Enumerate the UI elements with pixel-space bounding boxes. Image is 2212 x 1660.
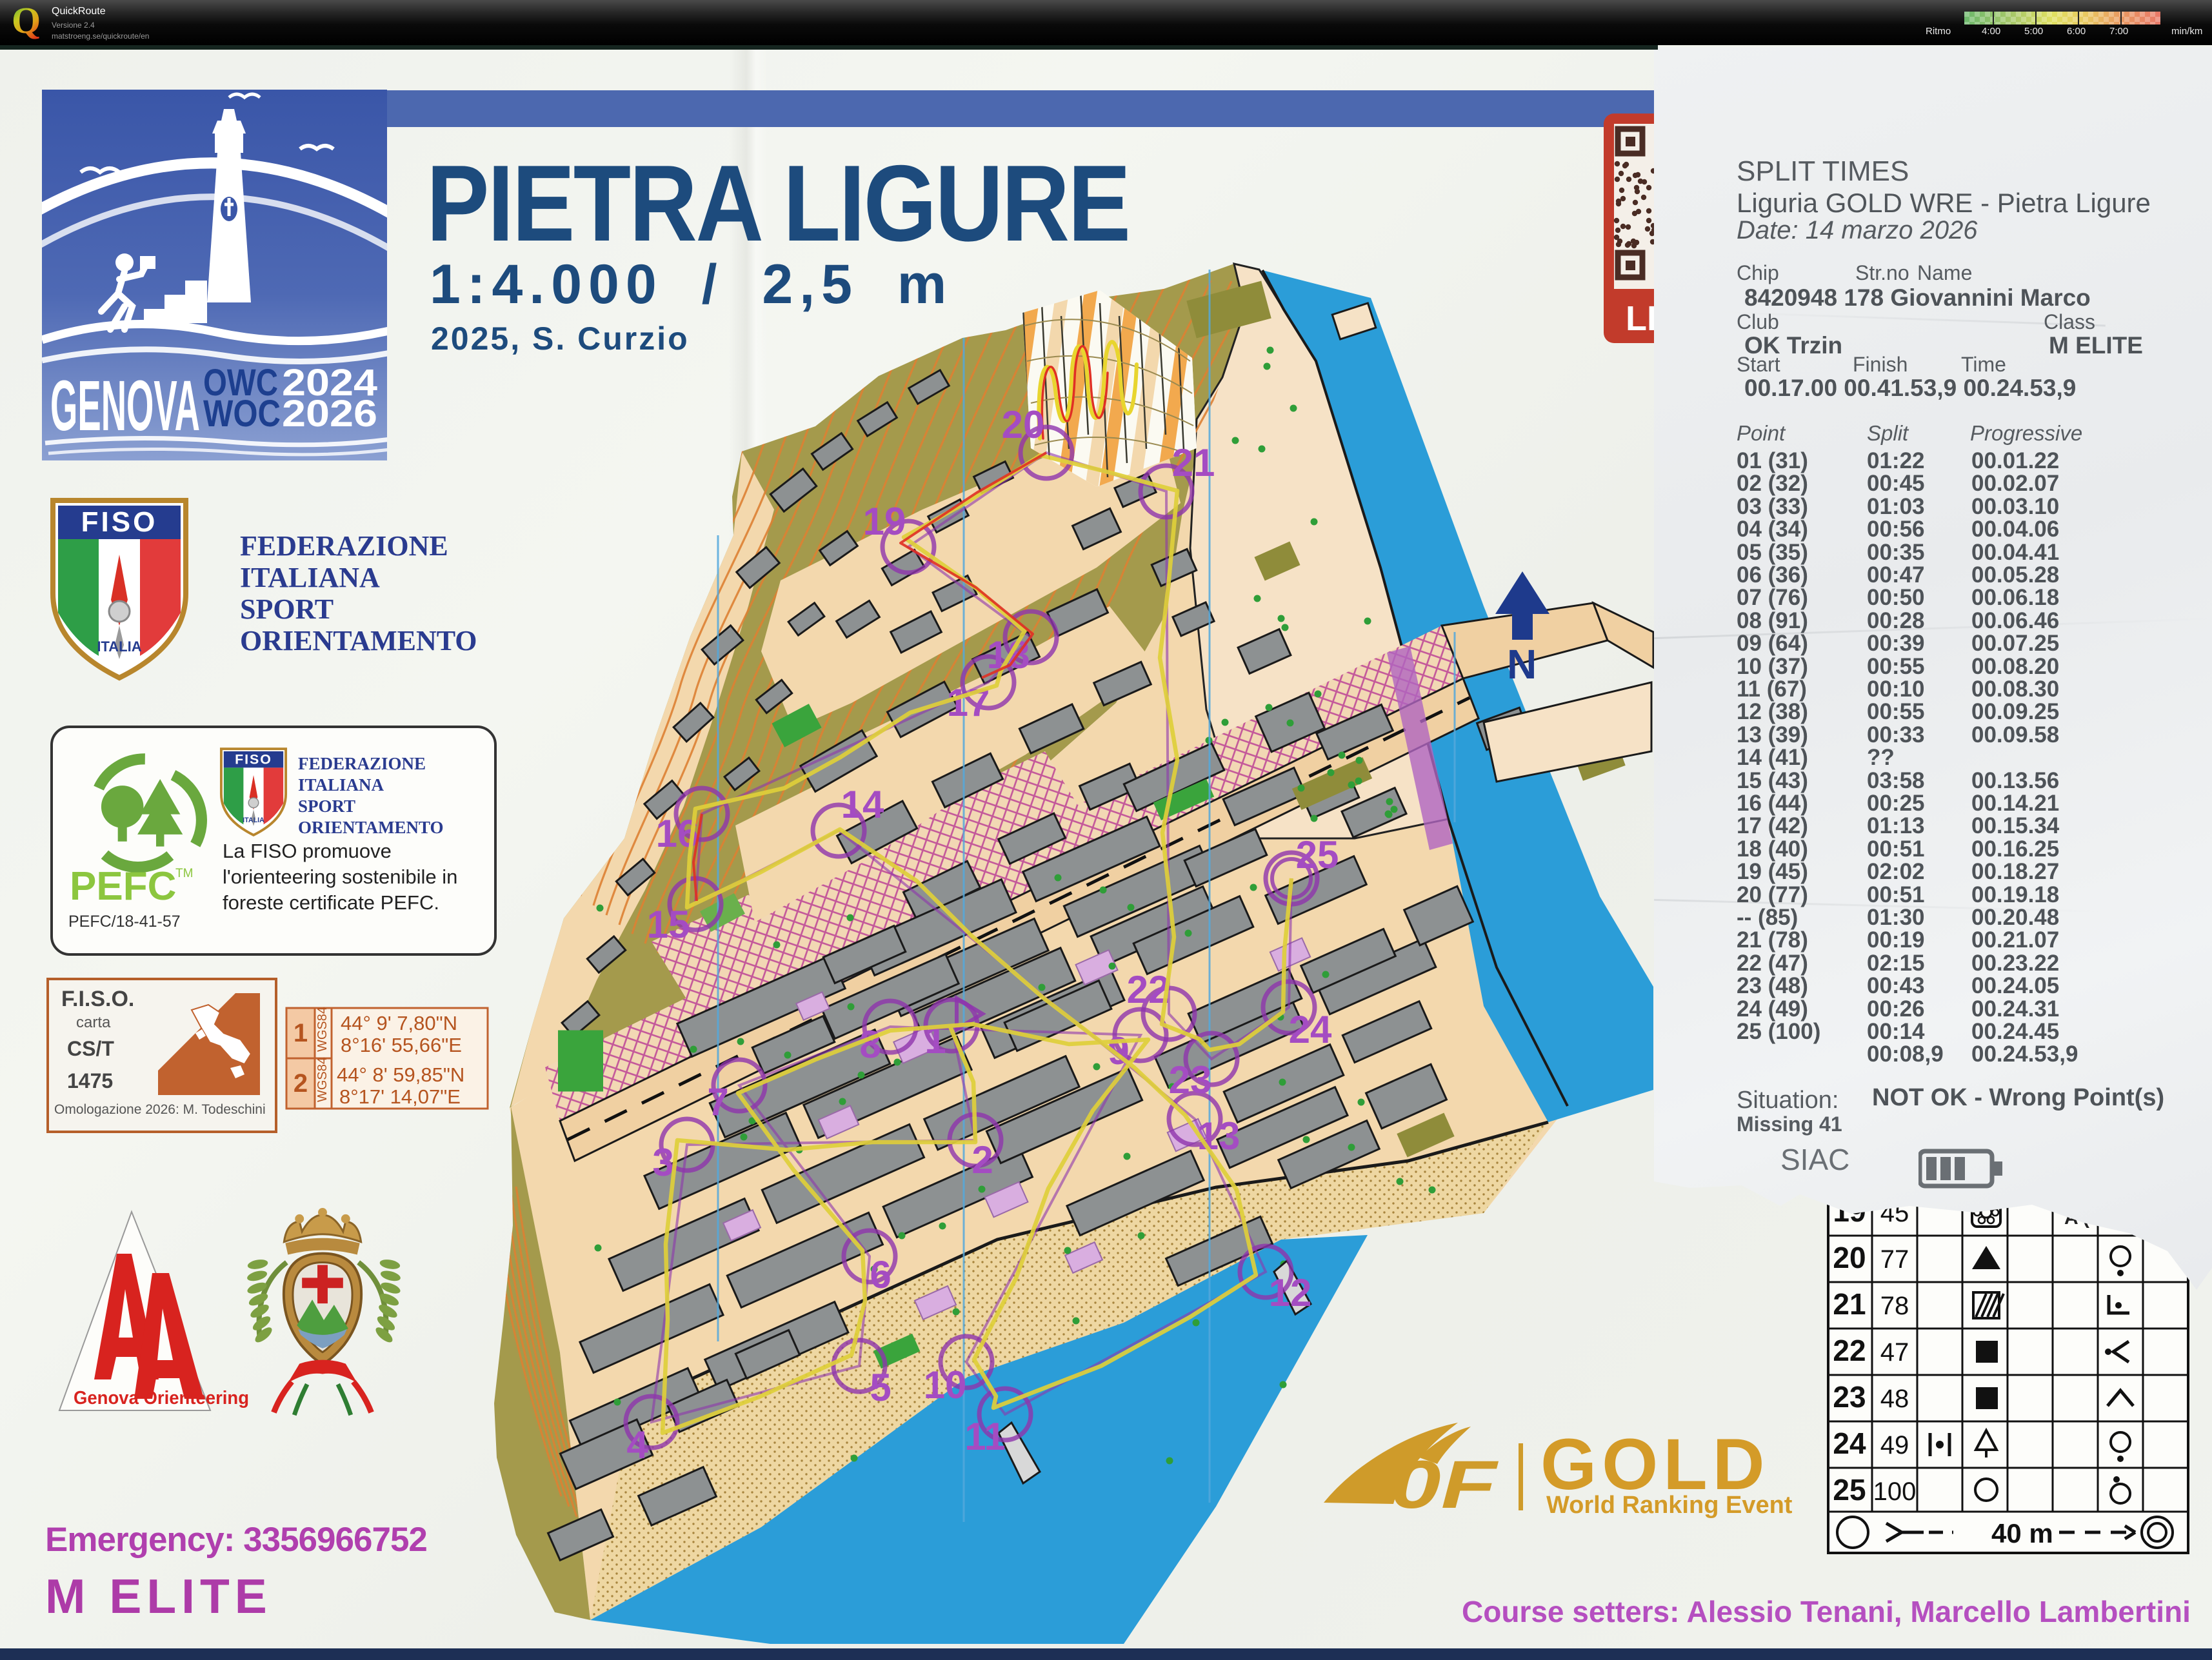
svg-text:2026: 2026 (282, 393, 377, 435)
svg-text:100: 100 (1873, 1477, 1917, 1506)
svg-text:5: 5 (870, 1366, 891, 1409)
svg-text:10: 10 (924, 1363, 967, 1407)
svg-text:FISO: FISO (81, 506, 158, 538)
svg-text:19: 19 (863, 500, 906, 543)
svg-text:GENOVA: GENOVA (50, 366, 200, 446)
svg-text:24: 24 (1289, 1008, 1332, 1051)
svg-text:FISO: FISO (235, 751, 272, 767)
svg-text:20: 20 (1002, 403, 1045, 446)
svg-text:ITALIA: ITALIA (243, 816, 264, 824)
svg-text:TM: TM (175, 867, 193, 880)
svg-text:Genova Orienteering: Genova Orienteering (74, 1388, 249, 1408)
svg-text:PEFC: PEFC (70, 864, 176, 909)
svg-text:3: 3 (652, 1141, 673, 1184)
svg-text:40 m: 40 m (1991, 1518, 2053, 1548)
svg-text:44° 8' 59,85"N: 44° 8' 59,85"N (337, 1063, 464, 1086)
svg-text:44° 9' 7,80"N: 44° 9' 7,80"N (341, 1012, 457, 1034)
svg-text:0F: 0F (1390, 1447, 1499, 1523)
svg-text:23: 23 (1169, 1058, 1212, 1102)
svg-text:11: 11 (964, 1415, 1005, 1458)
svg-text:7: 7 (707, 1080, 728, 1123)
svg-text:25: 25 (1833, 1473, 1866, 1507)
svg-text:13: 13 (1197, 1114, 1241, 1158)
svg-text:23: 23 (1833, 1380, 1866, 1414)
svg-text:17: 17 (947, 681, 990, 724)
svg-text:21: 21 (1833, 1287, 1866, 1321)
svg-text:8°17' 14,07"E: 8°17' 14,07"E (339, 1085, 461, 1108)
svg-text:48: 48 (1880, 1385, 1909, 1413)
svg-text:14: 14 (841, 783, 884, 826)
svg-text:15: 15 (647, 903, 690, 946)
svg-text:12: 12 (1269, 1271, 1312, 1314)
svg-text:24: 24 (1833, 1427, 1866, 1460)
svg-text:20: 20 (1833, 1241, 1866, 1274)
svg-text:4: 4 (626, 1423, 648, 1467)
svg-text:World Ranking Event: World Ranking Event (1546, 1492, 1793, 1519)
svg-text:8°16' 55,66"E: 8°16' 55,66"E (341, 1034, 462, 1056)
svg-text:2: 2 (294, 1069, 308, 1098)
svg-text:1: 1 (294, 1019, 308, 1047)
svg-text:78: 78 (1880, 1292, 1909, 1320)
svg-text:N: N (1507, 641, 1537, 687)
svg-text:PEFC/18-41-57: PEFC/18-41-57 (68, 913, 181, 931)
svg-text:25: 25 (1296, 833, 1339, 876)
svg-text:LI: LI (1626, 299, 1657, 338)
svg-text:ITALIA: ITALIA (97, 638, 141, 655)
svg-text:2: 2 (971, 1138, 993, 1181)
svg-text:8: 8 (859, 1023, 881, 1066)
svg-text:6: 6 (870, 1253, 891, 1296)
svg-text:21: 21 (1172, 441, 1215, 484)
svg-text:WGS84: WGS84 (315, 1057, 330, 1102)
svg-text:Q: Q (12, 1, 41, 41)
svg-text:77: 77 (1880, 1245, 1909, 1274)
svg-text:47: 47 (1880, 1338, 1909, 1367)
svg-text:WGS84: WGS84 (315, 1007, 330, 1052)
svg-text:WOC: WOC (203, 393, 281, 435)
svg-text:49: 49 (1880, 1431, 1909, 1459)
svg-text:22: 22 (1833, 1334, 1866, 1367)
